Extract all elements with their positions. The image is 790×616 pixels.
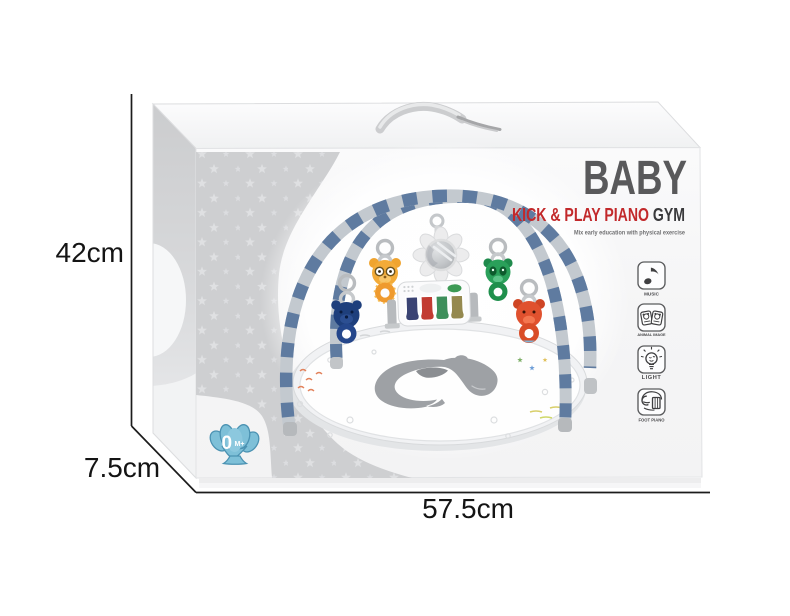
svg-text:42cm: 42cm: [56, 237, 124, 268]
svg-text:7.5cm: 7.5cm: [84, 452, 160, 483]
svg-text:KICK & PLAY PIANO GYM: KICK & PLAY PIANO GYM: [512, 205, 685, 225]
svg-text:LIGHT: LIGHT: [642, 375, 662, 381]
svg-text:ANIMAL IMAGE: ANIMAL IMAGE: [637, 333, 666, 337]
svg-text:0: 0: [222, 433, 233, 454]
svg-text:FOOT PIANO: FOOT PIANO: [638, 418, 665, 423]
svg-text:BABY: BABY: [583, 152, 687, 205]
svg-text:MUSIC: MUSIC: [644, 292, 659, 297]
svg-text:M+: M+: [235, 441, 245, 448]
svg-text:Mix early education with physi: Mix early education with physical exerci…: [574, 230, 685, 237]
svg-text:57.5cm: 57.5cm: [422, 493, 514, 524]
